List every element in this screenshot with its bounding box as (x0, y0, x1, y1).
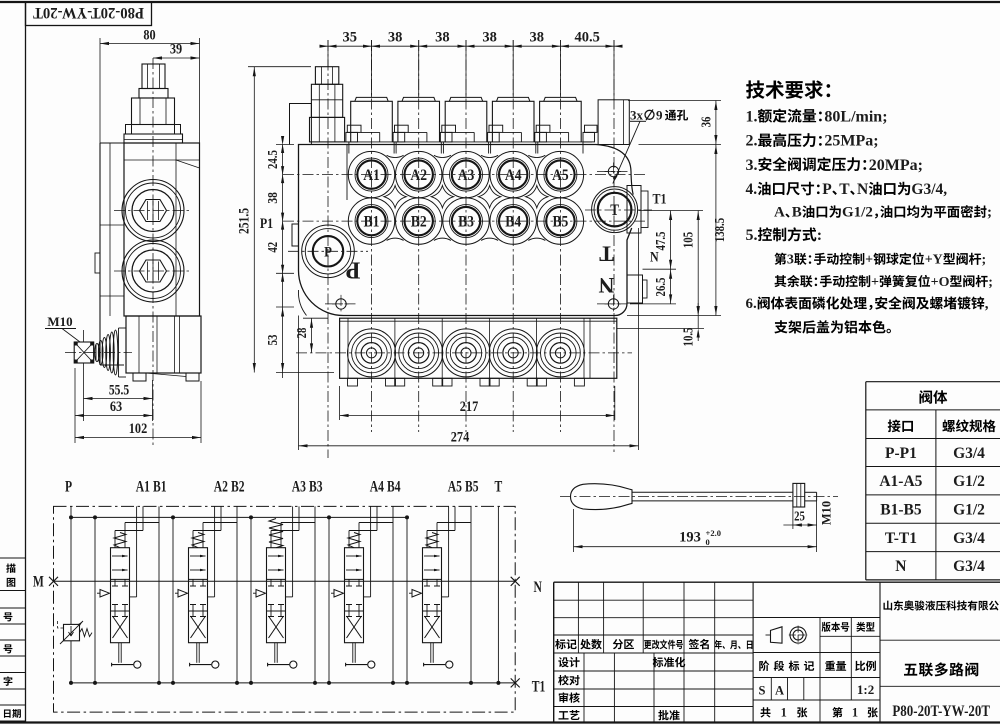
svg-text:G1/2: G1/2 (953, 473, 985, 490)
svg-text:N: N (895, 558, 906, 575)
svg-text:T: T (610, 202, 619, 219)
svg-text:A4: A4 (370, 478, 384, 495)
svg-text:+: + (865, 253, 873, 268)
svg-text:G3/4: G3/4 (953, 530, 985, 547)
svg-text::: : (817, 227, 822, 244)
svg-text:25: 25 (794, 508, 805, 523)
svg-text:217: 217 (460, 398, 479, 414)
svg-text:P80-20T-YW-20T: P80-20T-YW-20T (892, 703, 990, 721)
svg-text:S: S (759, 684, 766, 698)
svg-text:47.5: 47.5 (653, 232, 668, 251)
svg-text:A2: A2 (410, 167, 427, 184)
svg-text:105: 105 (680, 232, 695, 248)
svg-text:B3: B3 (458, 214, 474, 231)
svg-text:80L/min;: 80L/min; (824, 108, 887, 125)
svg-text:G3/4: G3/4 (953, 558, 985, 575)
svg-text:25MPa;: 25MPa; (824, 133, 878, 150)
svg-text:36: 36 (698, 117, 713, 128)
svg-text:P: P (346, 257, 361, 283)
svg-text:38: 38 (482, 30, 497, 46)
svg-text:193: 193 (679, 530, 701, 546)
svg-text:40.5: 40.5 (575, 30, 600, 46)
svg-text:55.5: 55.5 (109, 381, 130, 398)
svg-text:35: 35 (343, 30, 358, 46)
svg-text:10.5: 10.5 (680, 328, 695, 347)
svg-text:;: ; (982, 253, 987, 268)
svg-text:A2: A2 (214, 478, 228, 495)
svg-text:138.5: 138.5 (712, 218, 727, 242)
svg-text:42: 42 (265, 242, 280, 253)
svg-text:P: P (822, 181, 832, 198)
svg-text:M10: M10 (47, 314, 72, 329)
svg-text:B4: B4 (387, 478, 401, 495)
svg-text:T1: T1 (653, 190, 667, 207)
svg-text:A5: A5 (552, 167, 569, 184)
svg-text:T-T1: T-T1 (885, 530, 917, 547)
svg-text:B5: B5 (552, 214, 568, 231)
svg-text:P: P (65, 478, 72, 495)
svg-text:5.: 5. (746, 227, 758, 244)
svg-text:1: 1 (781, 706, 787, 720)
svg-text:B1: B1 (153, 478, 167, 495)
svg-text:38: 38 (265, 192, 280, 203)
svg-text:2.: 2. (746, 133, 758, 150)
svg-text:26.5: 26.5 (653, 278, 668, 297)
svg-text:M10: M10 (820, 501, 834, 525)
svg-text:B4: B4 (505, 214, 521, 231)
svg-text:P-P1: P-P1 (885, 445, 917, 462)
svg-text:B2: B2 (411, 214, 427, 231)
svg-text:9: 9 (656, 108, 663, 123)
svg-text:39: 39 (170, 41, 183, 57)
svg-text:1.: 1. (746, 108, 758, 125)
svg-text:24.5: 24.5 (265, 150, 280, 169)
svg-text:+: + (871, 275, 879, 290)
svg-text:A1-A5: A1-A5 (879, 473, 922, 490)
svg-text:28: 28 (294, 328, 309, 339)
svg-text:38: 38 (435, 30, 450, 46)
svg-text:P1: P1 (260, 215, 274, 232)
svg-text:G1/2: G1/2 (953, 502, 985, 519)
svg-text:P80-20T-YW-20T: P80-20T-YW-20T (33, 4, 144, 20)
svg-text:38: 38 (388, 30, 403, 46)
svg-text:A5: A5 (448, 478, 462, 495)
svg-text:1: 1 (852, 706, 858, 720)
svg-text:6.: 6. (746, 296, 758, 312)
svg-text:N: N (857, 181, 868, 198)
svg-text:N: N (534, 578, 542, 595)
svg-text:3: 3 (787, 253, 794, 268)
svg-text:B1-B5: B1-B5 (880, 502, 922, 519)
svg-text:B5: B5 (465, 478, 479, 495)
svg-text:A4: A4 (505, 167, 522, 184)
svg-text:A3: A3 (292, 478, 306, 495)
svg-text:T: T (839, 181, 850, 198)
svg-text:,: , (985, 296, 989, 312)
svg-text:38: 38 (530, 30, 545, 46)
svg-text:B3: B3 (309, 478, 323, 495)
svg-text:A1: A1 (363, 167, 380, 184)
svg-text:B2: B2 (231, 478, 245, 495)
svg-text:+O: +O (931, 275, 950, 290)
svg-text:M: M (33, 573, 44, 590)
svg-text:80: 80 (143, 27, 156, 43)
svg-text:;: ; (988, 275, 993, 290)
svg-text:251.5: 251.5 (235, 208, 252, 234)
svg-text:T: T (599, 242, 614, 267)
svg-text:N: N (598, 273, 614, 298)
svg-text:4.: 4. (746, 181, 758, 198)
svg-text:274: 274 (451, 428, 470, 444)
svg-text:20MPa;: 20MPa; (869, 157, 923, 174)
svg-text:+Y: +Y (925, 253, 943, 268)
svg-text:3.: 3. (746, 157, 758, 174)
svg-text:0: 0 (706, 537, 710, 547)
svg-text:T: T (495, 478, 503, 495)
svg-text:3x: 3x (630, 108, 644, 123)
svg-text:B: B (792, 205, 802, 221)
svg-text:G3/4,: G3/4, (911, 181, 947, 198)
svg-text:63: 63 (110, 398, 123, 414)
svg-text:A1: A1 (136, 478, 150, 495)
svg-text:A3: A3 (458, 167, 475, 184)
svg-text:G3/4: G3/4 (953, 445, 985, 462)
svg-text:P: P (324, 245, 332, 261)
svg-text:B1: B1 (364, 214, 380, 231)
svg-text:A: A (775, 684, 784, 698)
svg-text:53: 53 (265, 335, 280, 346)
svg-text:102: 102 (129, 420, 148, 436)
svg-text:T1: T1 (532, 678, 546, 695)
svg-text:A: A (774, 205, 785, 221)
svg-text:1:2: 1:2 (857, 682, 874, 697)
svg-text:;: ; (987, 205, 992, 221)
svg-text:G1/2: G1/2 (842, 205, 873, 221)
